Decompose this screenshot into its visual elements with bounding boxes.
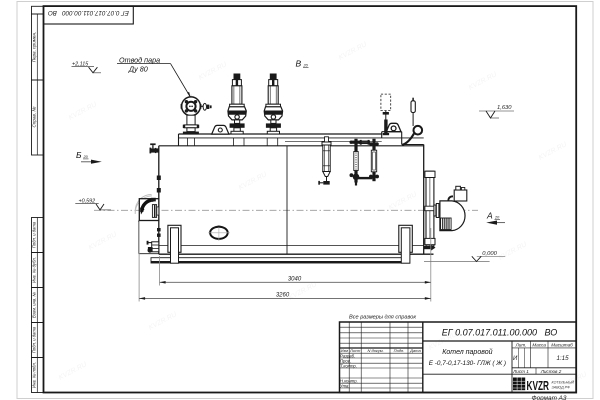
svg-text:ЕГ 0.07.017.011.00.000 ВО: ЕГ 0.07.017.011.00.000 ВО xyxy=(442,328,558,338)
svg-text:1,630: 1,630 xyxy=(497,105,512,111)
svg-text:Справ. №: Справ. № xyxy=(31,107,36,128)
svg-text:3260: 3260 xyxy=(276,292,290,298)
svg-text:Подп. и дата: Подп. и дата xyxy=(31,326,36,353)
svg-text:Перв. примен.: Перв. примен. xyxy=(31,32,36,63)
svg-text:Отвод пара: Отвод пара xyxy=(119,56,160,65)
svg-text:Подп. и дата: Подп. и дата xyxy=(31,221,36,248)
svg-text:Масса: Масса xyxy=(532,342,546,347)
svg-text:Лист 1: Лист 1 xyxy=(512,369,529,374)
svg-text:Дата: Дата xyxy=(409,348,421,353)
svg-text:И: И xyxy=(513,356,518,362)
svg-text:Котел паровой: Котел паровой xyxy=(442,348,492,356)
svg-text:Е -0,7-0,17-130- ГЛЖ ( Ж ): Е -0,7-0,17-130- ГЛЖ ( Ж ) xyxy=(429,360,506,367)
svg-text:Т.контр.: Т.контр. xyxy=(340,364,357,369)
svg-text:Взам. инв. №: Взам. инв. № xyxy=(31,292,36,318)
svg-text:Листов 2: Листов 2 xyxy=(540,369,562,374)
svg-text:Формат А3: Формат А3 xyxy=(532,395,567,400)
svg-text:Лит.: Лит. xyxy=(515,342,527,347)
svg-text:ЕГ 0.07.017.011.00.000 ВО: ЕГ 0.07.017.011.00.000 ВО xyxy=(48,9,129,16)
svg-text:20: 20 xyxy=(83,155,89,159)
svg-text:N докум.: N докум. xyxy=(368,348,384,353)
svg-text:0,000: 0,000 xyxy=(482,251,497,257)
svg-text:Масштаб: Масштаб xyxy=(551,342,573,347)
svg-text:ЗАВОД РФ: ЗАВОД РФ xyxy=(552,386,570,390)
svg-text:KVZR: KVZR xyxy=(527,379,550,393)
svg-text:Инв. № дубл.: Инв. № дубл. xyxy=(31,257,36,283)
svg-text:1:15: 1:15 xyxy=(556,355,569,362)
svg-text:Б: Б xyxy=(76,150,82,160)
svg-text:Утв.: Утв. xyxy=(340,383,350,388)
svg-text:Все размеры для справок: Все размеры для справок xyxy=(349,314,416,320)
svg-text:20: 20 xyxy=(494,216,500,220)
svg-text:А: А xyxy=(486,211,493,221)
svg-text:Ду 80: Ду 80 xyxy=(128,65,148,74)
svg-text:3040: 3040 xyxy=(288,276,302,282)
svg-text:Подп.: Подп. xyxy=(394,348,405,353)
svg-text:КОТЕЛЬНЫЙ: КОТЕЛЬНЫЙ xyxy=(552,381,575,385)
svg-text:В: В xyxy=(296,59,302,69)
svg-text:Инв. № подл.: Инв. № подл. xyxy=(31,362,36,388)
svg-text:20: 20 xyxy=(303,64,309,68)
